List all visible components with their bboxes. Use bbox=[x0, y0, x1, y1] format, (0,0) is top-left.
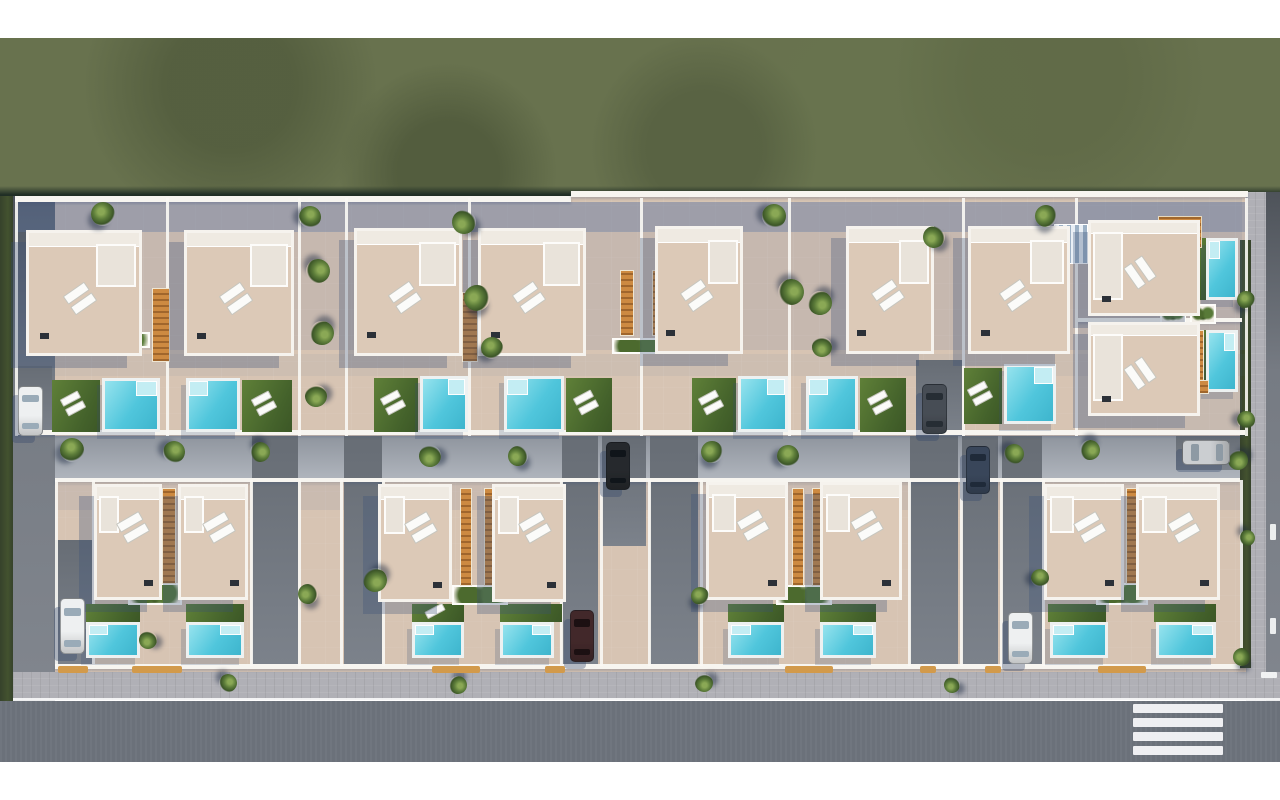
car bbox=[966, 446, 990, 494]
roof-loungers bbox=[202, 511, 236, 544]
roof-terrace-room bbox=[1142, 496, 1167, 533]
wooden-stairs bbox=[460, 488, 472, 586]
lawn bbox=[692, 378, 736, 432]
driveway bbox=[252, 436, 298, 666]
lawn-loungers bbox=[698, 389, 725, 415]
plot-wall bbox=[1245, 198, 1248, 436]
roof-vent bbox=[40, 333, 49, 339]
pool-step bbox=[532, 625, 551, 635]
villa-house bbox=[492, 484, 566, 602]
roof-terrace-room bbox=[384, 496, 406, 534]
roof-terrace-room bbox=[498, 496, 520, 534]
lawn bbox=[728, 604, 784, 622]
car-windshield bbox=[22, 395, 40, 402]
lawn bbox=[86, 604, 140, 622]
grass-field bbox=[0, 38, 1280, 196]
roof-terrace-room bbox=[712, 494, 736, 532]
villa-house bbox=[1044, 484, 1124, 600]
roof-terrace-room bbox=[184, 496, 204, 533]
lane-dash bbox=[1270, 524, 1276, 540]
pool-step bbox=[809, 379, 828, 395]
plot-wall bbox=[700, 480, 703, 666]
crosswalk-stripe bbox=[1133, 704, 1223, 713]
plot-wall bbox=[298, 198, 301, 436]
pool-step bbox=[1034, 367, 1053, 384]
bottom-margin bbox=[0, 762, 1280, 800]
lane-dash bbox=[1261, 672, 1277, 678]
roof-terrace-room bbox=[96, 244, 136, 287]
driveway bbox=[910, 436, 958, 666]
roof-loungers bbox=[850, 509, 884, 542]
wood-curb-mark bbox=[785, 666, 833, 673]
roof-terrace-room bbox=[1093, 232, 1123, 300]
car-rear-window bbox=[574, 649, 591, 656]
roof-vent bbox=[981, 330, 990, 336]
lawn bbox=[374, 378, 418, 432]
car-windshield bbox=[926, 393, 944, 400]
boundary-wall bbox=[15, 196, 571, 202]
lawn bbox=[964, 368, 1002, 424]
car-windshield bbox=[610, 450, 627, 457]
villa-house bbox=[655, 226, 743, 354]
car bbox=[606, 442, 630, 490]
wooden-stairs bbox=[620, 270, 634, 336]
car bbox=[1008, 612, 1033, 664]
lawn-loungers bbox=[380, 389, 407, 415]
pool-step bbox=[767, 379, 785, 395]
driveway bbox=[650, 436, 698, 666]
roof-terrace-room bbox=[99, 496, 119, 533]
access-lane bbox=[55, 436, 1240, 482]
pool-step bbox=[415, 625, 434, 635]
roof-loungers bbox=[1167, 511, 1201, 544]
wood-curb-mark bbox=[1098, 666, 1146, 673]
wooden-stairs bbox=[792, 488, 804, 586]
plot-wall bbox=[600, 480, 603, 666]
left-hedge bbox=[0, 196, 13, 708]
villa-house bbox=[26, 230, 142, 356]
car-windshield bbox=[970, 454, 987, 461]
villa-house bbox=[184, 230, 294, 356]
swimming-pool bbox=[500, 622, 554, 658]
swimming-pool bbox=[728, 622, 784, 658]
plot-wall bbox=[298, 480, 301, 666]
plot-wall bbox=[345, 198, 348, 436]
lawn-loungers bbox=[967, 380, 994, 406]
roof-terrace-room bbox=[250, 244, 287, 287]
roof-loungers bbox=[63, 282, 97, 316]
roof-vent bbox=[433, 582, 442, 588]
roof-terrace-room bbox=[1050, 496, 1074, 533]
villa-house bbox=[94, 484, 162, 600]
car-rear-window bbox=[64, 640, 82, 647]
villa-house bbox=[178, 484, 248, 600]
car bbox=[1182, 440, 1230, 465]
swimming-pool bbox=[504, 376, 564, 432]
villa-house bbox=[378, 484, 452, 602]
car bbox=[922, 384, 947, 434]
lawn-loungers bbox=[867, 389, 894, 415]
pool-step bbox=[1209, 241, 1220, 259]
pool-step bbox=[731, 625, 751, 635]
swimming-pool bbox=[1206, 330, 1238, 392]
car-rear-window bbox=[1216, 444, 1222, 462]
roof-vent bbox=[666, 330, 675, 336]
swimming-pool bbox=[1050, 622, 1108, 658]
roof-loungers bbox=[512, 281, 546, 315]
swimming-pool bbox=[1004, 364, 1056, 424]
pool-step bbox=[189, 381, 208, 396]
car bbox=[570, 610, 594, 662]
swimming-pool bbox=[186, 378, 240, 432]
pool-step bbox=[89, 625, 108, 635]
swimming-pool bbox=[1156, 622, 1216, 658]
car-windshield bbox=[64, 608, 82, 616]
villa-house bbox=[706, 482, 788, 600]
lawn bbox=[1048, 604, 1106, 622]
roof-loungers bbox=[1123, 356, 1157, 390]
lawn bbox=[52, 380, 100, 432]
pool-step bbox=[1224, 333, 1235, 351]
roof-vent bbox=[197, 333, 206, 339]
car-rear-window bbox=[926, 421, 944, 427]
villa-house bbox=[354, 228, 462, 356]
wooden-stairs bbox=[162, 488, 176, 584]
car-rear-window bbox=[610, 478, 627, 484]
roof-loungers bbox=[404, 511, 438, 544]
roof-vent bbox=[1200, 580, 1209, 586]
pool-step bbox=[136, 381, 157, 396]
swimming-pool bbox=[1206, 238, 1238, 300]
plot-wall bbox=[960, 480, 963, 666]
boundary-wall bbox=[571, 191, 1248, 197]
crosswalk-stripe bbox=[1133, 746, 1223, 755]
swimming-pool bbox=[820, 622, 876, 658]
car bbox=[18, 386, 43, 436]
plot-wall bbox=[640, 198, 643, 436]
roof-terrace-room bbox=[708, 240, 738, 284]
pool-step bbox=[220, 625, 241, 635]
car-windshield bbox=[1012, 621, 1030, 629]
car bbox=[60, 598, 85, 654]
plot-wall bbox=[648, 480, 651, 666]
wood-curb-mark bbox=[920, 666, 936, 673]
pool-step bbox=[1192, 625, 1213, 635]
roof-vent bbox=[1102, 296, 1111, 302]
lawn-loungers bbox=[60, 390, 87, 416]
palm-tree bbox=[91, 202, 115, 226]
sun-lounger bbox=[424, 603, 445, 619]
plot-wall bbox=[1000, 480, 1003, 666]
lawn-loungers bbox=[251, 390, 278, 416]
lawn-loungers bbox=[573, 389, 600, 415]
villa-house bbox=[846, 226, 934, 354]
plot-wall bbox=[340, 480, 343, 666]
swimming-pool bbox=[738, 376, 788, 432]
lawn bbox=[242, 380, 292, 432]
plot-wall bbox=[1240, 480, 1243, 666]
roof-terrace-room bbox=[899, 240, 929, 284]
roof-terrace-room bbox=[543, 242, 580, 286]
lawn bbox=[820, 604, 876, 622]
swimming-pool bbox=[420, 376, 468, 432]
bottom-road bbox=[0, 701, 1280, 762]
swimming-pool bbox=[186, 622, 244, 658]
aerial-render-scene bbox=[0, 0, 1280, 800]
swimming-pool bbox=[806, 376, 858, 432]
swimming-pool bbox=[102, 378, 160, 432]
top-margin bbox=[0, 0, 1280, 38]
pool-step bbox=[1053, 625, 1074, 635]
swimming-pool bbox=[86, 622, 140, 658]
car-windshield bbox=[1191, 444, 1198, 462]
plot-wall bbox=[250, 480, 253, 666]
car-rear-window bbox=[1012, 651, 1030, 658]
roof-vent bbox=[230, 580, 239, 586]
roof-terrace-room bbox=[1030, 240, 1065, 284]
lawn bbox=[186, 604, 244, 622]
roof-loungers bbox=[999, 279, 1033, 313]
villa-house bbox=[820, 482, 902, 600]
villa-house bbox=[968, 226, 1070, 354]
roof-loungers bbox=[388, 281, 422, 315]
lawn bbox=[1154, 604, 1216, 622]
lawn bbox=[500, 604, 562, 622]
swimming-pool bbox=[412, 622, 464, 658]
wooden-stairs bbox=[152, 288, 170, 362]
wood-curb-mark bbox=[432, 666, 480, 673]
wood-curb-mark bbox=[985, 666, 1001, 673]
wood-curb-mark bbox=[58, 666, 88, 673]
plot-wall bbox=[55, 480, 58, 666]
roof-vent bbox=[1102, 396, 1111, 402]
roof-loungers bbox=[1073, 511, 1107, 544]
roof-vent bbox=[1105, 580, 1114, 586]
roof-terrace-room bbox=[1093, 334, 1123, 401]
car-rear-window bbox=[22, 423, 40, 429]
driveway bbox=[344, 436, 382, 666]
wood-curb-mark bbox=[132, 666, 182, 673]
lawn bbox=[412, 604, 464, 622]
plot-wall bbox=[908, 480, 911, 666]
roof-vent bbox=[882, 580, 891, 586]
lane-dash bbox=[1270, 618, 1276, 634]
car-windshield bbox=[574, 619, 591, 627]
villa-house bbox=[1088, 322, 1200, 416]
crosswalk-stripe bbox=[1133, 718, 1223, 727]
lawn-loungers bbox=[424, 603, 445, 619]
roof-loungers bbox=[518, 511, 552, 544]
pool-step bbox=[853, 625, 873, 635]
roof-vent bbox=[547, 582, 556, 588]
crosswalk-stripe bbox=[1133, 732, 1223, 741]
roof-terrace-room bbox=[826, 494, 850, 532]
roof-loungers bbox=[219, 282, 253, 316]
roof-vent bbox=[857, 330, 866, 336]
wood-curb-mark bbox=[545, 666, 565, 673]
villa-house bbox=[1136, 484, 1220, 600]
roof-vent bbox=[367, 332, 376, 338]
roof-loungers bbox=[1123, 255, 1157, 289]
roof-loungers bbox=[116, 511, 150, 544]
plot-wall bbox=[788, 198, 791, 436]
lawn bbox=[566, 378, 612, 432]
pool-step bbox=[507, 379, 528, 395]
pool-step bbox=[448, 379, 465, 395]
roof-loungers bbox=[736, 509, 770, 542]
car-rear-window bbox=[970, 482, 987, 488]
roof-vent bbox=[768, 580, 777, 586]
lawn bbox=[860, 378, 906, 432]
roof-terrace-room bbox=[419, 242, 456, 286]
roof-vent bbox=[144, 580, 153, 586]
villa-house bbox=[1088, 220, 1200, 316]
bottom-sidewalk bbox=[13, 672, 1280, 700]
